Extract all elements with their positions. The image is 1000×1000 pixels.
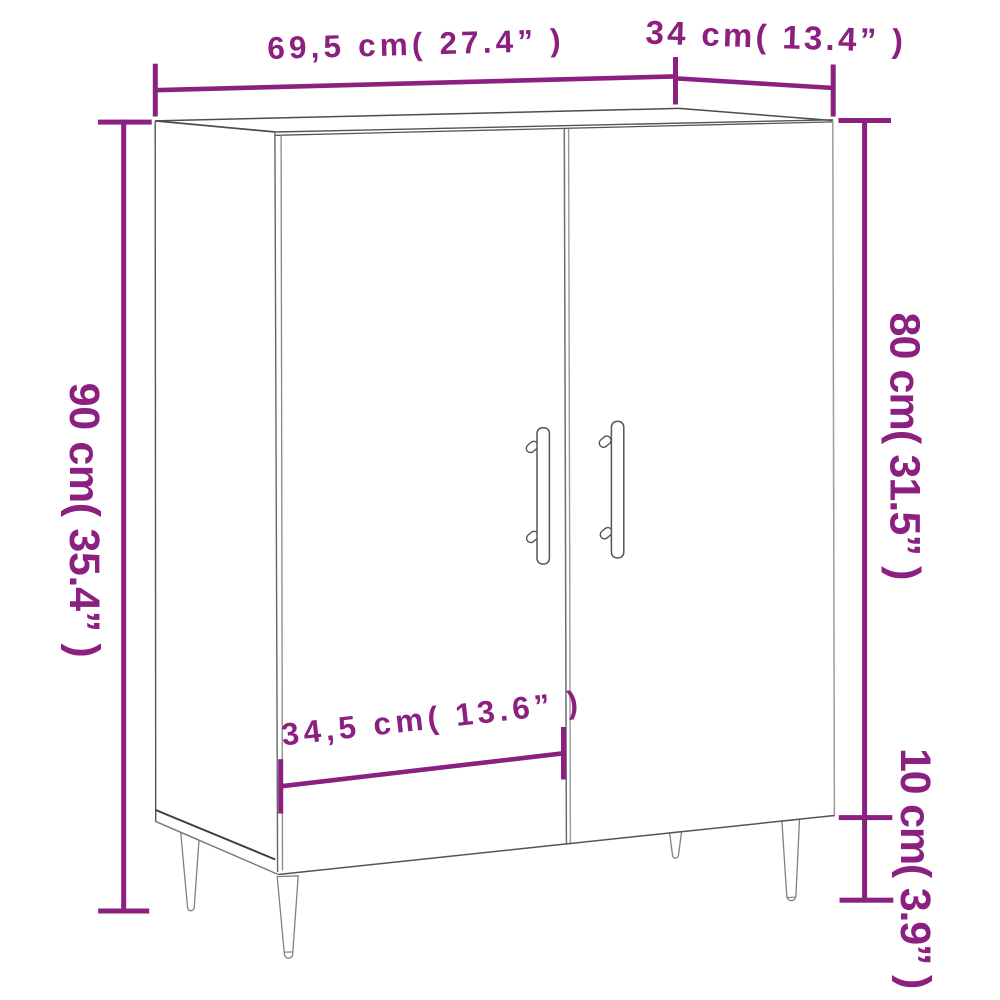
svg-text:80 cm( 31.5” ): 80 cm( 31.5” ) [881,312,929,579]
svg-text:34 cm( 13.4” ): 34 cm( 13.4” ) [645,13,907,59]
svg-text:90 cm( 35.4” ): 90 cm( 35.4” ) [60,383,108,658]
svg-text:10 cm( 3.9” ): 10 cm( 3.9” ) [891,748,939,988]
svg-text:69,5 cm( 27.4” ): 69,5 cm( 27.4” ) [267,22,565,66]
